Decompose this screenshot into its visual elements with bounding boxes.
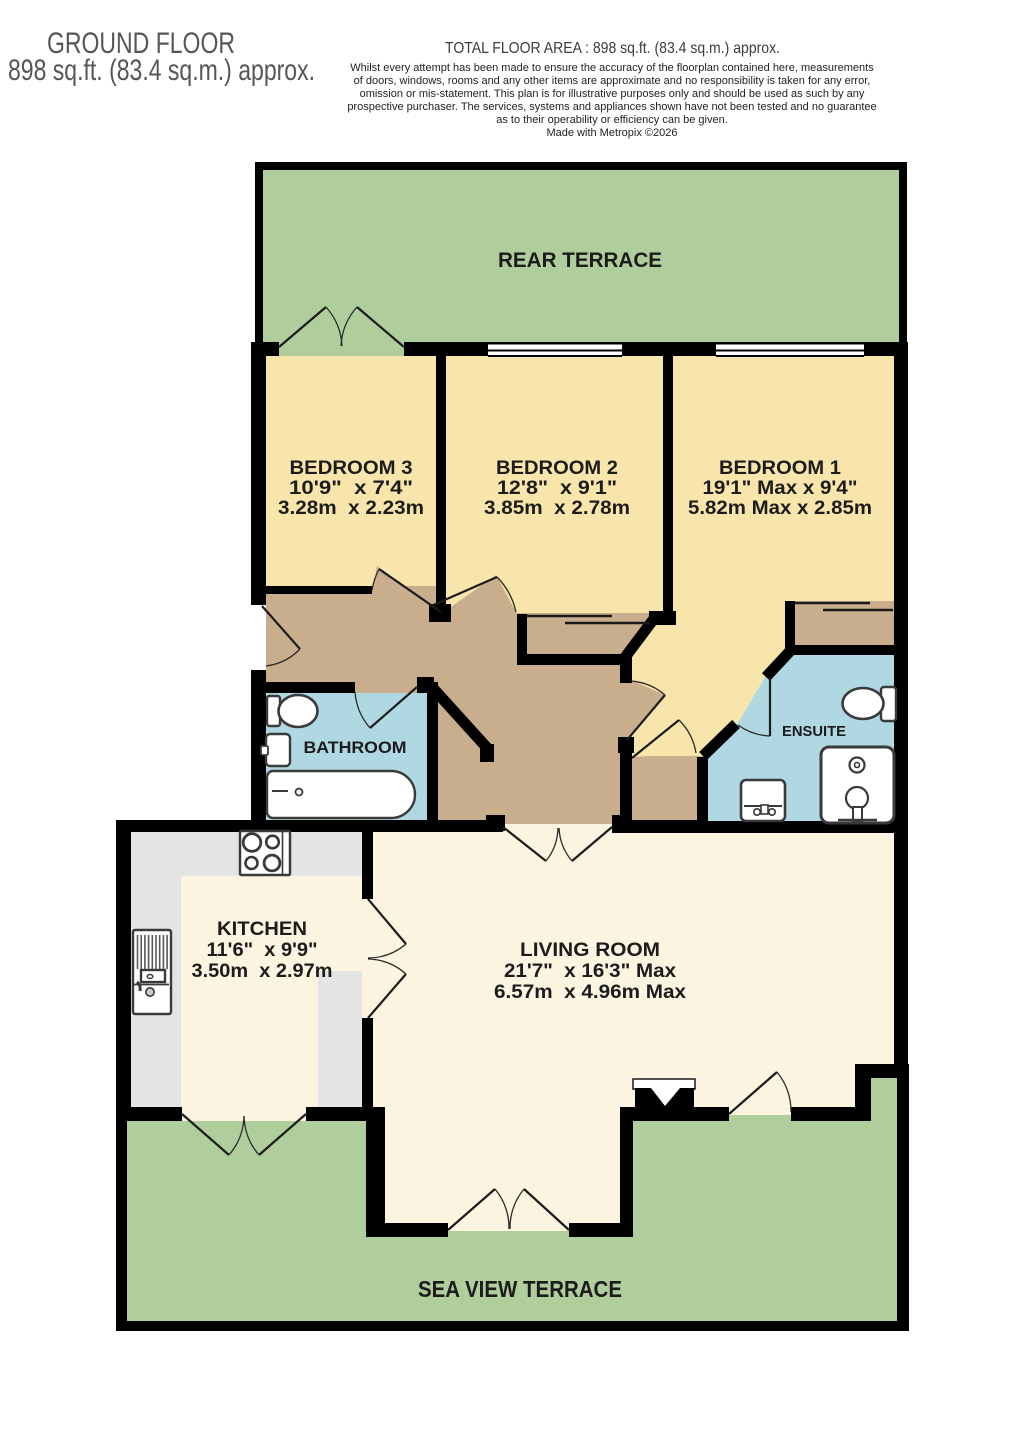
svg-text:of doors, windows, rooms and a: of doors, windows, rooms and any other i… <box>354 75 871 87</box>
svg-text:3.50m x 2.97m: 3.50m x 2.97m <box>192 960 333 982</box>
svg-text:5.82m Max x 2.85m: 5.82m Max x 2.85m <box>688 497 872 519</box>
svg-text:as to their operability or eff: as to their operability or efficiency ca… <box>496 114 728 126</box>
svg-text:Whilst every attempt has been: Whilst every attempt has been made to en… <box>350 62 874 74</box>
svg-text:BATHROOM: BATHROOM <box>304 739 407 757</box>
svg-text:Made with Metropix ©2026: Made with Metropix ©2026 <box>546 127 677 139</box>
svg-text:SEA VIEW TERRACE: SEA VIEW TERRACE <box>418 1276 622 1302</box>
svg-text:3.85m x 2.78m: 3.85m x 2.78m <box>484 497 630 519</box>
svg-text:omission or mis-statement. Thi: omission or mis-statement. This plan is … <box>360 88 865 100</box>
svg-text:BEDROOM 1: BEDROOM 1 <box>719 457 841 479</box>
svg-text:19'1" Max x 9'4": 19'1" Max x 9'4" <box>703 477 858 499</box>
svg-text:TOTAL FLOOR AREA : 898 sq.ft.: TOTAL FLOOR AREA : 898 sq.ft. (83.4 sq.m… <box>445 40 780 57</box>
svg-text:KITCHEN: KITCHEN <box>217 918 307 940</box>
svg-text:6.57m x 4.96m Max: 6.57m x 4.96m Max <box>494 981 686 1003</box>
svg-text:ENSUITE: ENSUITE <box>782 723 846 740</box>
svg-text:LIVING ROOM: LIVING ROOM <box>520 939 660 961</box>
svg-text:BEDROOM 2: BEDROOM 2 <box>496 457 618 479</box>
svg-text:12'8" x 9'1": 12'8" x 9'1" <box>497 477 617 499</box>
svg-text:REAR TERRACE: REAR TERRACE <box>498 248 662 272</box>
svg-text:prospective purchaser. The ser: prospective purchaser. The services, sys… <box>347 101 876 113</box>
svg-text:21'7" x 16'3" Max: 21'7" x 16'3" Max <box>504 960 676 982</box>
svg-text:10'9" x 7'4": 10'9" x 7'4" <box>289 477 413 499</box>
svg-text:BEDROOM 3: BEDROOM 3 <box>290 457 413 479</box>
svg-text:898 sq.ft. (83.4 sq.m.) approx: 898 sq.ft. (83.4 sq.m.) approx. <box>8 54 315 87</box>
svg-text:11'6" x 9'9": 11'6" x 9'9" <box>207 939 318 961</box>
svg-text:3.28m x 2.23m: 3.28m x 2.23m <box>278 497 424 519</box>
